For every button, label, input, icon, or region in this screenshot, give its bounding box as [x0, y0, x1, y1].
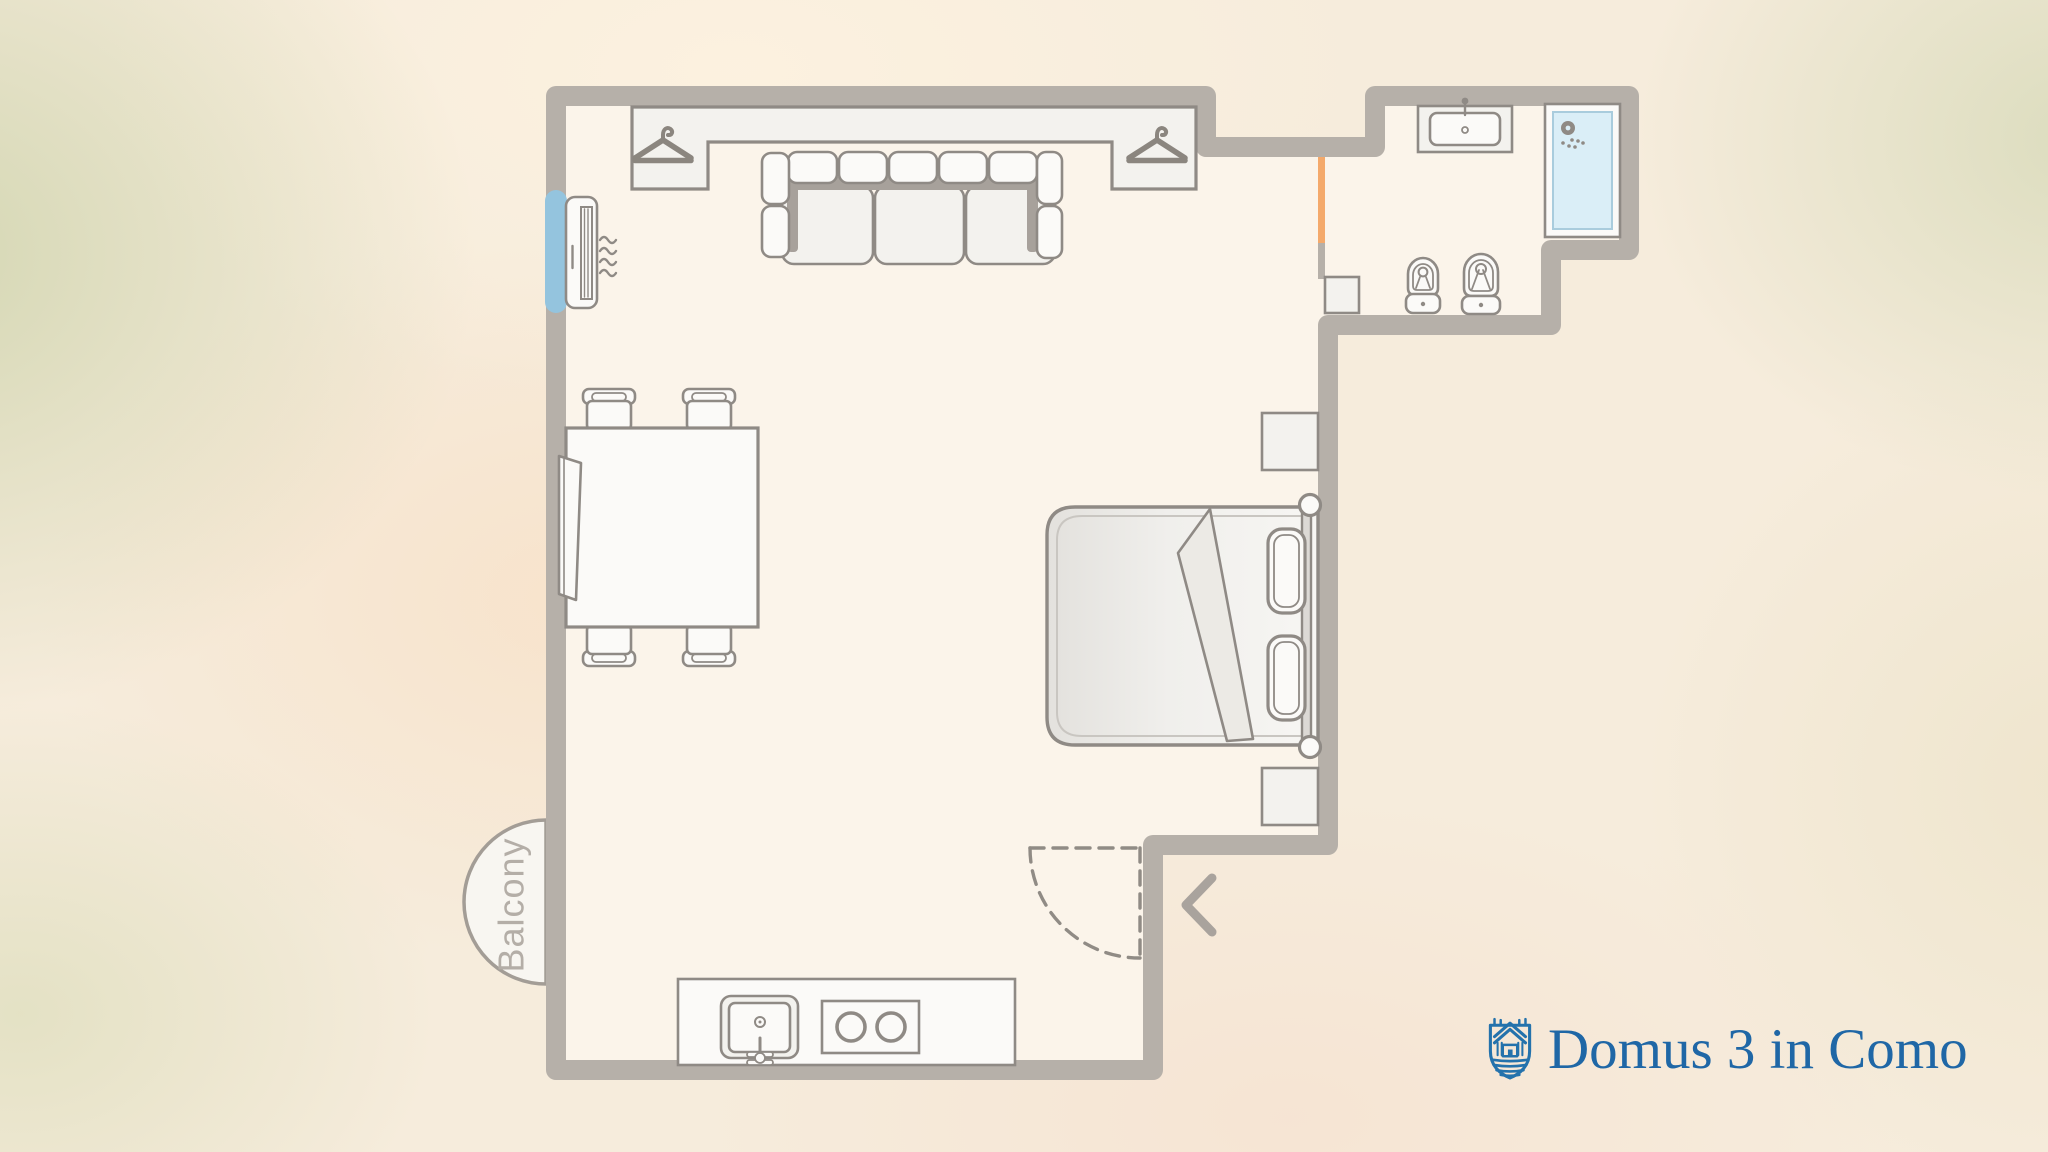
balcony-door-leaf	[559, 456, 581, 600]
dining-area	[559, 389, 758, 666]
bed	[1047, 495, 1321, 758]
dining-chair	[683, 389, 735, 430]
brand-name: Domus 3 in Como	[1548, 1021, 1968, 1078]
bed-post	[1300, 737, 1321, 758]
pillow	[1268, 529, 1305, 613]
pillow	[1268, 636, 1305, 720]
floor-plan: Balcony	[0, 0, 2048, 1152]
bed-post	[1300, 495, 1321, 516]
stove	[822, 1001, 919, 1053]
balcony: Balcony	[464, 820, 546, 984]
bidet	[1406, 258, 1440, 313]
kitchen-sink	[721, 996, 798, 1065]
balcony-label: Balcony	[491, 837, 532, 972]
dining-chair	[683, 625, 735, 666]
shield-house-waves-icon	[1486, 1017, 1534, 1081]
kitchen	[678, 979, 1015, 1065]
dining-chair	[583, 389, 635, 430]
chevron-left-icon	[1186, 878, 1212, 932]
bathroom-partition-wall	[1318, 243, 1325, 279]
sofa	[762, 152, 1062, 264]
bathroom-cabinet	[1325, 277, 1359, 313]
nightstand	[1262, 768, 1318, 825]
dining-chair	[583, 625, 635, 666]
dining-table	[566, 428, 758, 627]
floor-plan-page: Balcony	[0, 0, 2048, 1152]
window	[545, 190, 567, 313]
vanity-sink	[1418, 98, 1512, 152]
nightstand	[1262, 413, 1318, 470]
bathroom-door-marker	[1318, 157, 1325, 244]
toilet	[1462, 254, 1500, 314]
brand-logo: Domus 3 in Como	[1486, 1014, 1968, 1084]
shower	[1545, 104, 1620, 237]
